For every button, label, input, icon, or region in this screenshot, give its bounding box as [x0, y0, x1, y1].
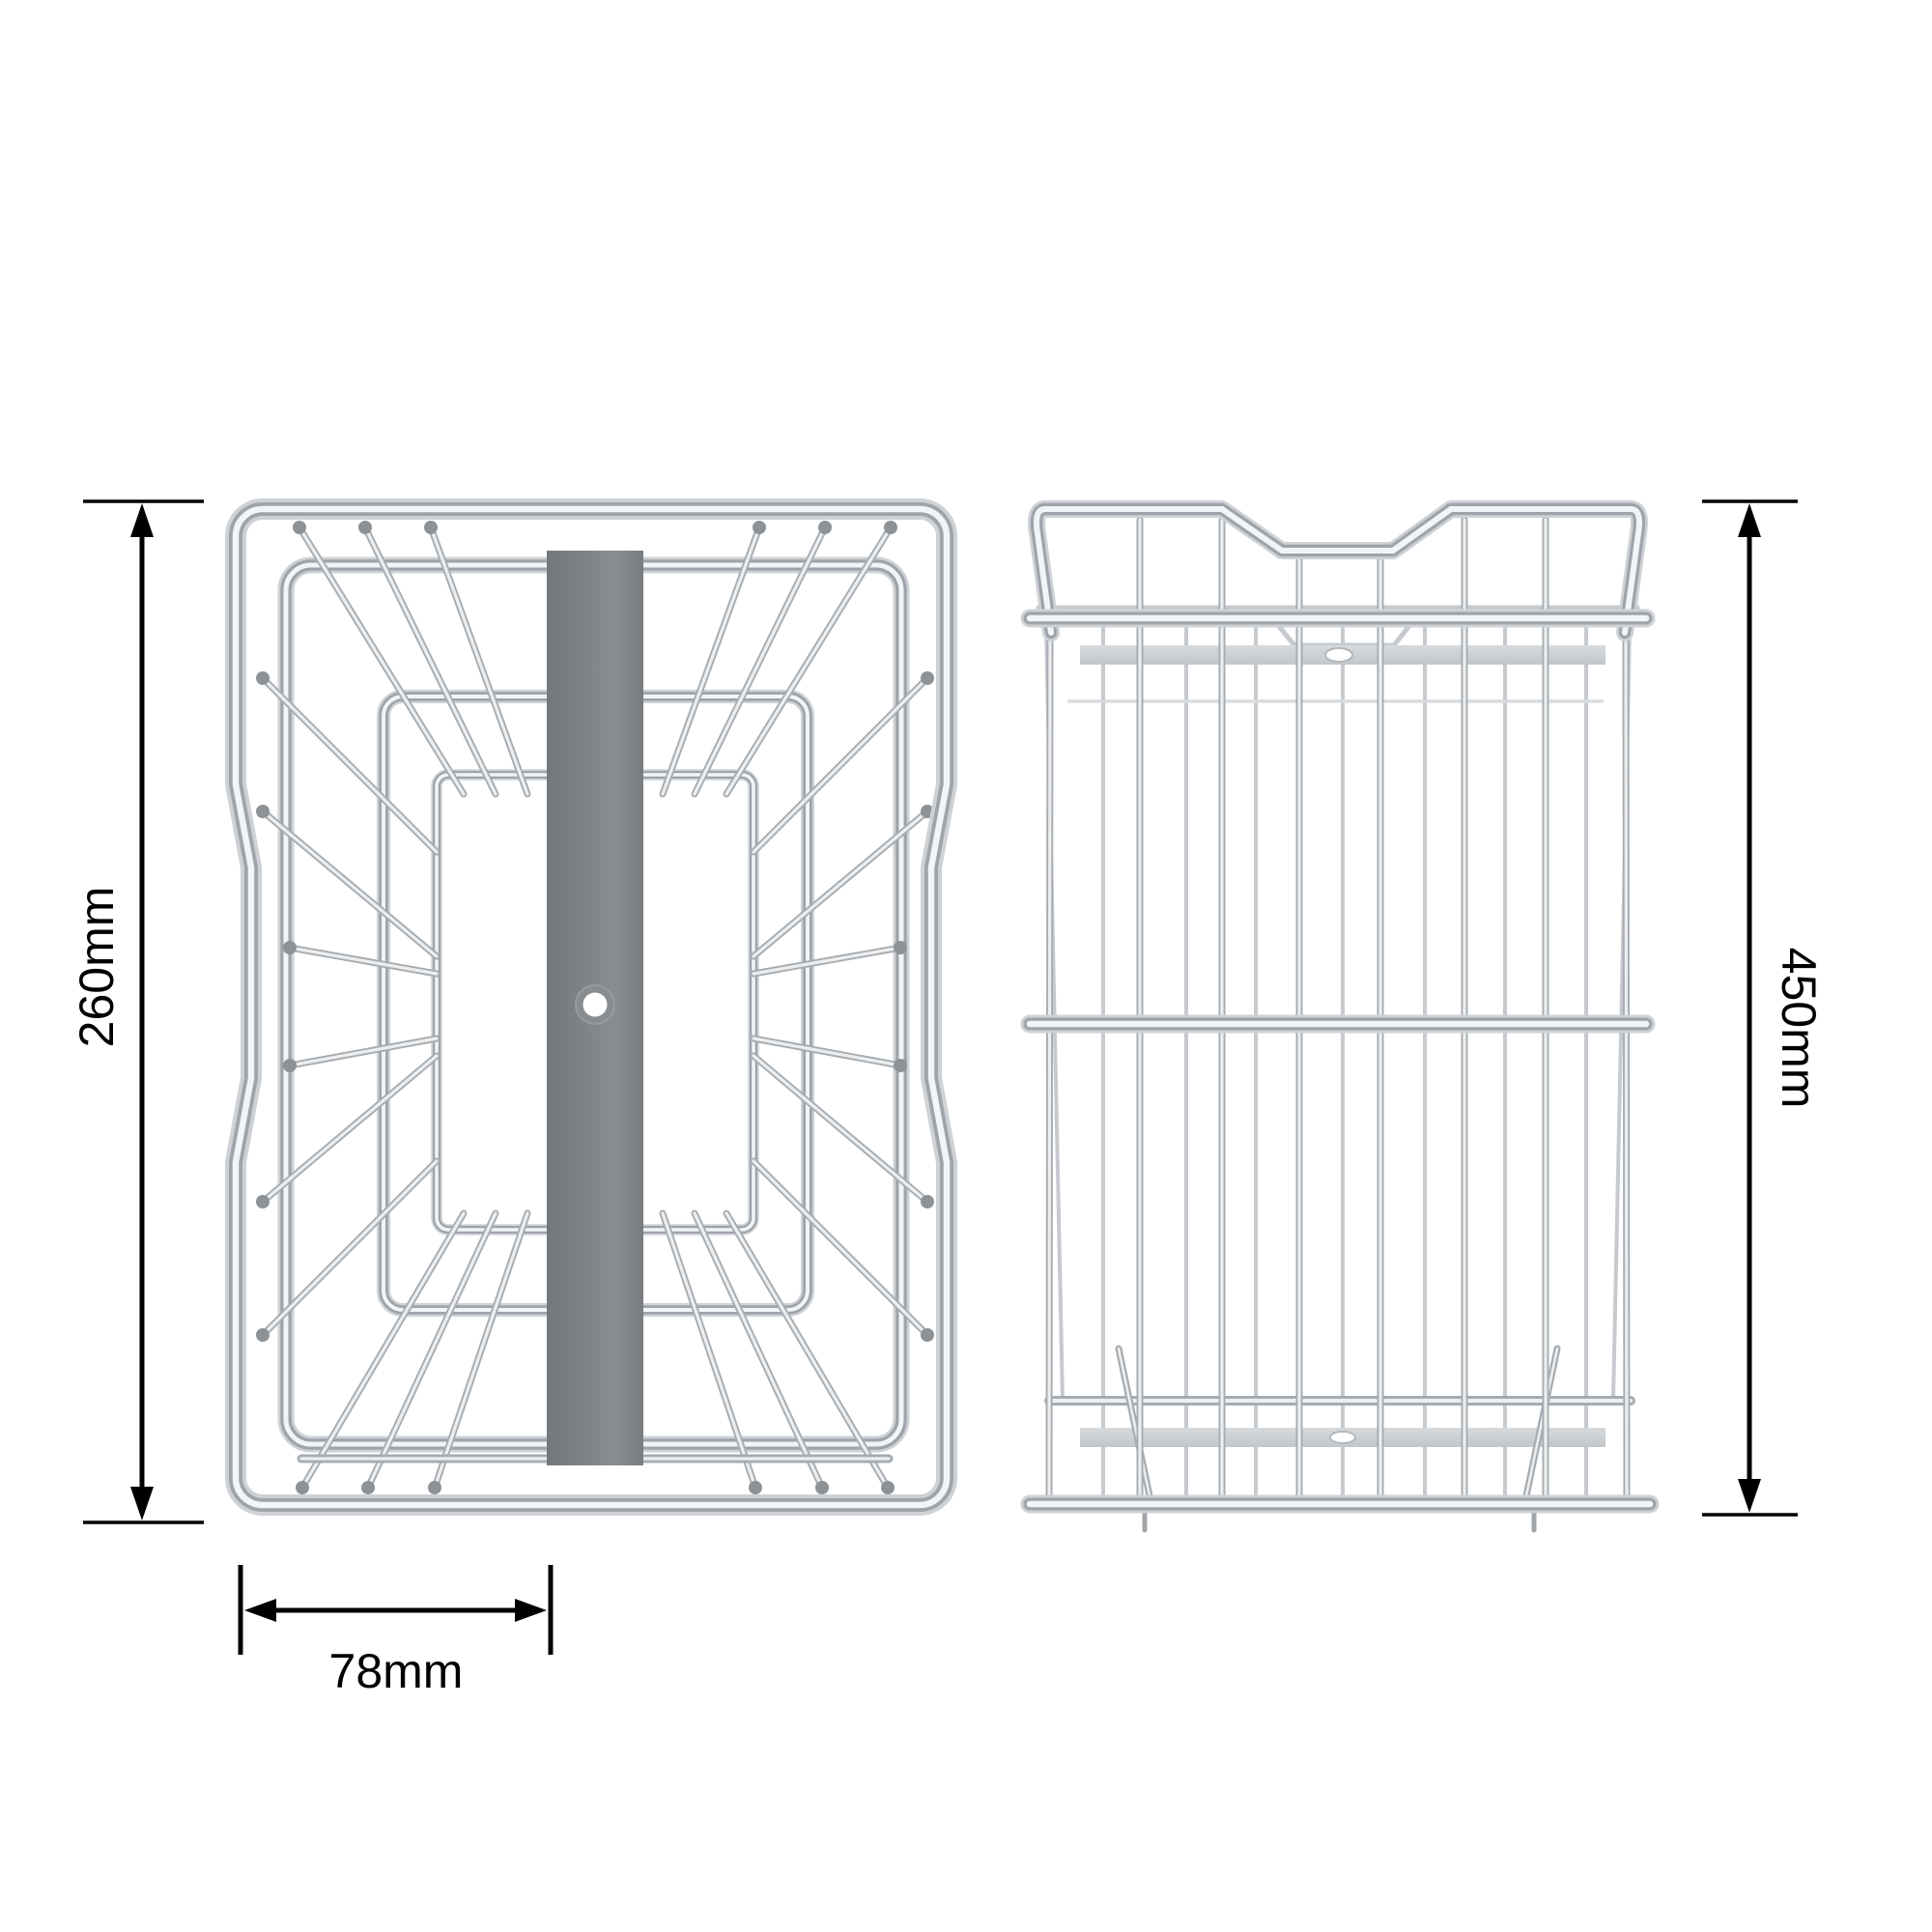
svg-text:450mm: 450mm	[1772, 948, 1826, 1109]
svg-text:260mm: 260mm	[70, 887, 124, 1048]
svg-text:78mm: 78mm	[329, 1644, 464, 1698]
